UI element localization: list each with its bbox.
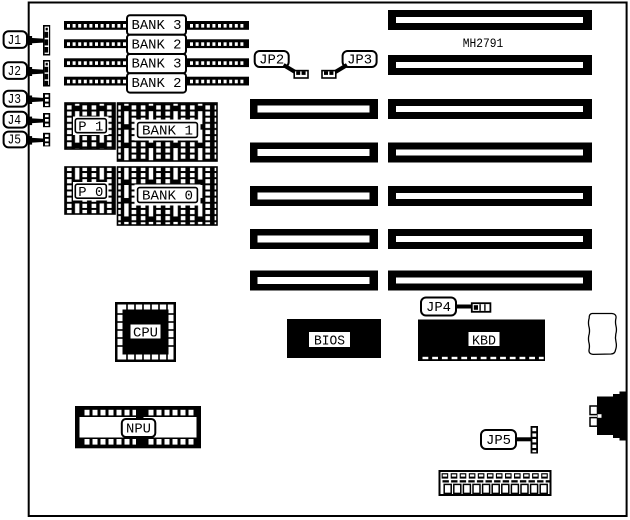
svg-text:JP3: JP3	[347, 54, 372, 69]
svg-text:BANK 2: BANK 2	[132, 38, 182, 53]
svg-text:KBD: KBD	[472, 334, 496, 349]
svg-text:CPU: CPU	[133, 326, 158, 341]
svg-text:J3: J3	[7, 93, 21, 108]
svg-text:BANK 2: BANK 2	[132, 77, 182, 92]
svg-text:NPU: NPU	[126, 423, 151, 438]
svg-text:J5: J5	[7, 134, 21, 149]
svg-text:J4: J4	[7, 114, 21, 129]
svg-text:J2: J2	[7, 65, 21, 80]
svg-text:J1: J1	[7, 34, 21, 49]
svg-text:JP5: JP5	[486, 434, 511, 449]
svg-text:BANK 3: BANK 3	[132, 19, 182, 34]
svg-text:JP2: JP2	[259, 54, 284, 69]
svg-text:BIOS: BIOS	[314, 334, 345, 349]
svg-text:P 1: P 1	[78, 120, 103, 135]
svg-text:JP4: JP4	[426, 301, 451, 316]
svg-text:BANK 1: BANK 1	[142, 125, 193, 140]
svg-text:BANK 3: BANK 3	[132, 58, 182, 73]
svg-text:MH2791: MH2791	[463, 36, 504, 51]
svg-text:P 0: P 0	[78, 186, 103, 201]
svg-text:BANK 0: BANK 0	[142, 190, 193, 205]
